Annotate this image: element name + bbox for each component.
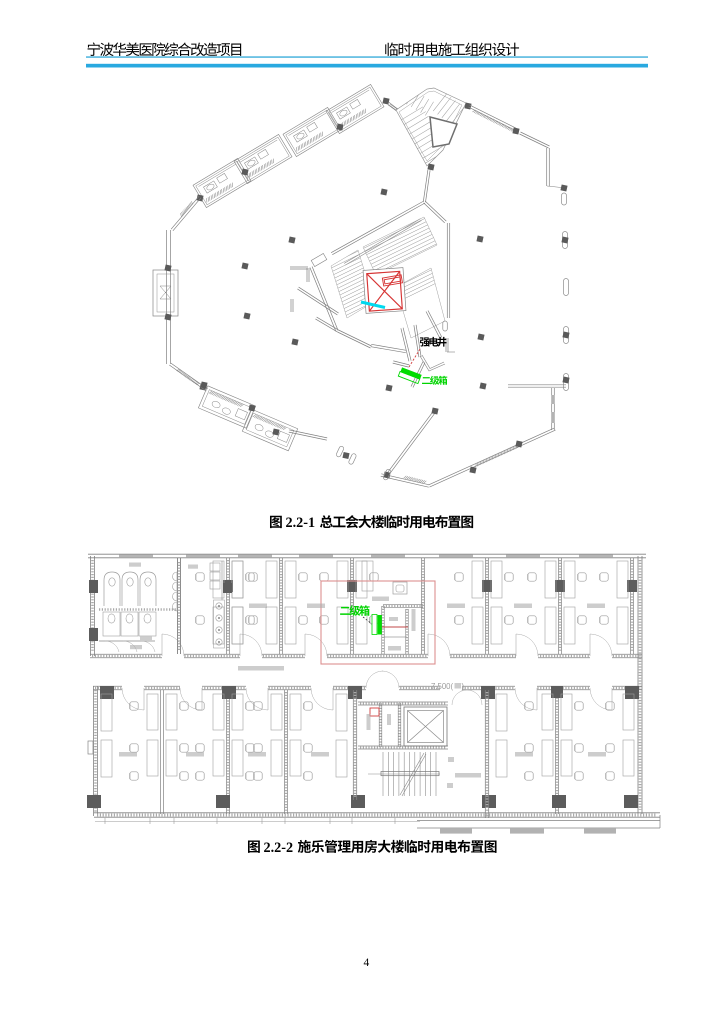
svg-text:7.500(: 7.500( xyxy=(431,682,454,691)
svg-text:4: 4 xyxy=(364,957,370,969)
svg-text:2.2-2: 2.2-2 xyxy=(264,840,294,856)
svg-text:2.2-1: 2.2-1 xyxy=(286,515,316,531)
svg-text:): ) xyxy=(462,682,465,691)
